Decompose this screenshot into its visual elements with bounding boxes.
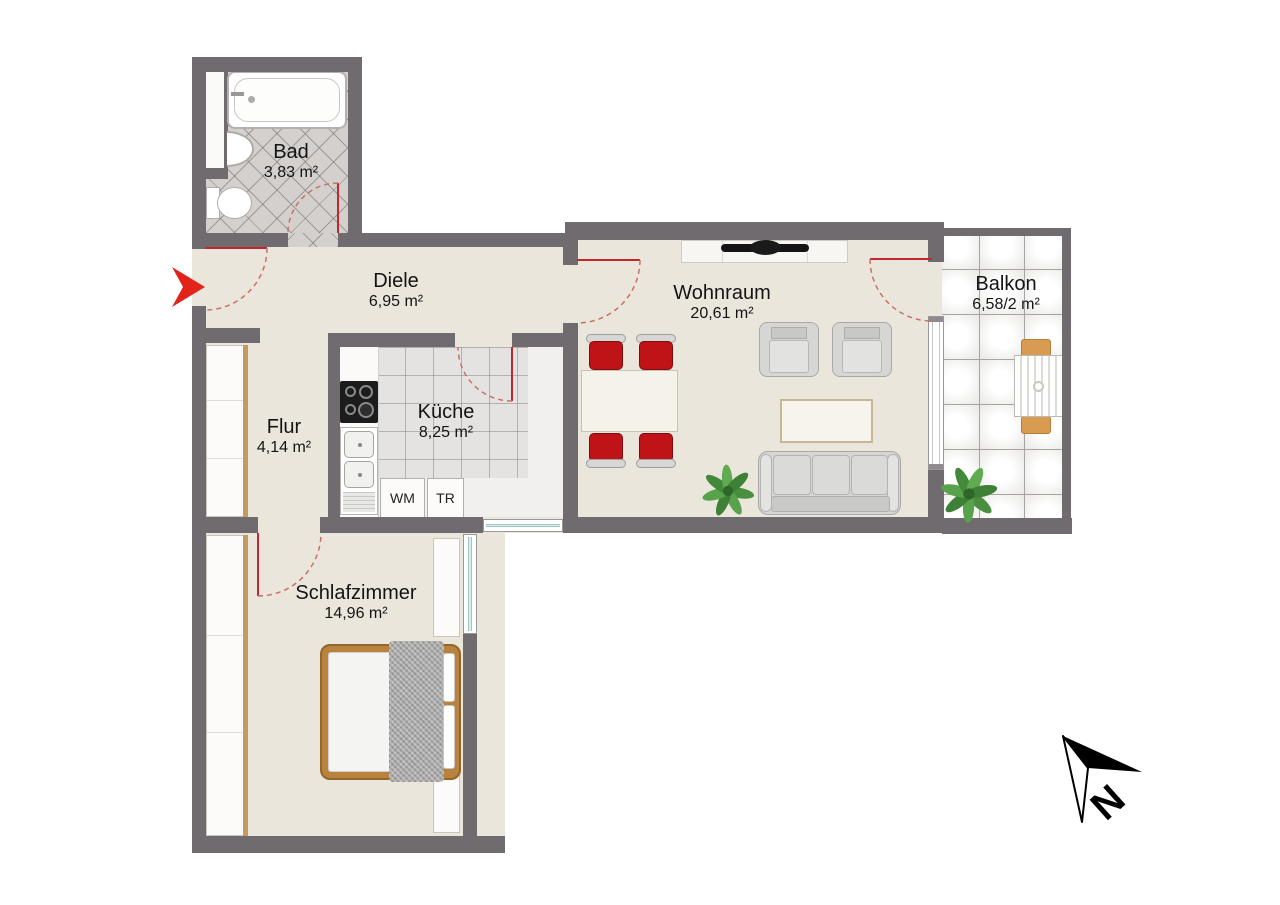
window-frame-line	[939, 322, 940, 464]
balcony-railing	[942, 518, 1072, 534]
bathtub-drain-icon	[248, 96, 255, 103]
dining-chair	[639, 433, 673, 462]
armchair-seat	[842, 340, 882, 373]
dining-chair-back	[586, 459, 626, 468]
flur-wardrobe-edge	[243, 345, 248, 517]
room-name: Flur	[257, 417, 311, 438]
sink-drain-dot	[358, 473, 362, 477]
room-label-schlafzimmer: Schlafzimmer 14,96 m²	[295, 583, 416, 623]
bedroom-window	[463, 534, 477, 634]
room-area: 14,96 m²	[295, 604, 416, 623]
bed-mattress	[328, 652, 392, 772]
sink-drain-dot	[358, 443, 362, 447]
wall	[206, 233, 288, 247]
sofa-backrest	[771, 496, 890, 512]
room-name: Schlafzimmer	[295, 583, 416, 604]
room-area: 3,83 m²	[264, 163, 318, 182]
north-label: N	[1083, 777, 1134, 829]
dryer: TR	[427, 478, 464, 518]
room-area: 8,25 m²	[418, 423, 475, 442]
wardrobe-divider	[207, 635, 243, 636]
armchair-back	[844, 327, 880, 339]
window-frame-line	[932, 322, 933, 464]
bathroom-shaft-stub	[206, 168, 228, 179]
livingroom-window	[928, 316, 944, 470]
flur-wardrobe	[206, 345, 248, 517]
balcony-chair	[1021, 416, 1051, 434]
window-cap	[929, 464, 943, 469]
bedroom-wardrobe	[206, 535, 248, 836]
armchair	[759, 322, 819, 377]
washing-machine: WM	[380, 478, 425, 518]
window-cap	[929, 317, 943, 322]
wall	[563, 517, 944, 533]
wall	[192, 306, 206, 853]
wardrobe-divider	[207, 400, 243, 401]
window-glass	[468, 537, 472, 631]
wall	[206, 328, 260, 343]
cooktop-burner	[345, 386, 356, 397]
room-name: Diele	[369, 271, 423, 292]
bed-blanket	[389, 641, 444, 782]
sofa-cushion	[851, 455, 888, 495]
wardrobe-divider	[207, 458, 243, 459]
north-arrow-icon: N	[1063, 736, 1142, 829]
wall	[565, 222, 942, 240]
dining-chair	[589, 433, 623, 462]
toilet-bowl	[217, 187, 252, 219]
armchair-seat	[769, 340, 809, 373]
dining-chair-back	[636, 459, 676, 468]
sofa-cushion	[773, 455, 811, 495]
room-label-balkon: Balkon 6,58/2 m²	[972, 274, 1040, 314]
room-label-diele: Diele 6,95 m²	[369, 271, 423, 311]
balcony-railing	[1062, 228, 1071, 526]
wall	[328, 333, 455, 347]
cooktop-burner	[359, 385, 373, 399]
wall	[348, 57, 362, 247]
wall	[463, 633, 477, 836]
kitchen-window	[483, 519, 563, 532]
room-area: 6,95 m²	[369, 292, 423, 311]
wardrobe-divider	[207, 732, 243, 733]
room-area: 4,14 m²	[257, 438, 311, 457]
room-name: Balkon	[972, 274, 1040, 295]
wall	[192, 836, 505, 853]
bedroom-wardrobe-edge	[243, 535, 248, 836]
washing-machine-label: WM	[390, 490, 415, 506]
wall	[563, 323, 578, 533]
room-name: Wohnraum	[673, 283, 770, 304]
sofa-cushion	[812, 455, 850, 495]
bathroom-doorway-tiles	[288, 233, 338, 247]
floor-plan: WM TR	[0, 0, 1280, 905]
room-area: 6,58/2 m²	[972, 295, 1040, 314]
cooktop-burner	[358, 402, 374, 418]
sofa	[758, 451, 901, 515]
sink-drainer	[343, 492, 375, 512]
tv-base	[750, 240, 781, 255]
room-label-wohnraum: Wohnraum 20,61 m²	[673, 283, 770, 323]
bed-pillow	[443, 653, 455, 702]
wall	[328, 333, 340, 533]
dining-table	[581, 370, 678, 432]
room-label-flur: Flur 4,14 m²	[257, 417, 311, 457]
room-name: Bad	[264, 142, 318, 163]
bed-pillow	[443, 705, 455, 769]
window-glass	[486, 524, 560, 527]
wall	[192, 517, 258, 533]
bedroom-shelf-top	[433, 538, 460, 637]
wall	[563, 240, 578, 265]
balcony-table-center	[1033, 381, 1044, 392]
bathtub-faucet-icon	[231, 92, 244, 96]
balcony-railing	[942, 228, 1070, 236]
dining-chair	[589, 341, 623, 370]
installation-shaft	[206, 71, 228, 168]
room-label-bad: Bad 3,83 m²	[264, 142, 318, 182]
armchair-back	[771, 327, 807, 339]
wall	[192, 57, 206, 249]
armchair	[832, 322, 892, 377]
wall	[338, 233, 364, 247]
wall	[320, 517, 483, 533]
room-label-kueche: Küche 8,25 m²	[418, 402, 475, 442]
wall	[192, 57, 362, 72]
coffee-table	[780, 399, 873, 443]
room-name: Küche	[418, 402, 475, 423]
cooktop-burner	[345, 404, 356, 415]
dryer-label: TR	[436, 490, 455, 506]
wall	[362, 233, 578, 247]
dining-chair	[639, 341, 673, 370]
room-area: 20,61 m²	[673, 304, 770, 323]
